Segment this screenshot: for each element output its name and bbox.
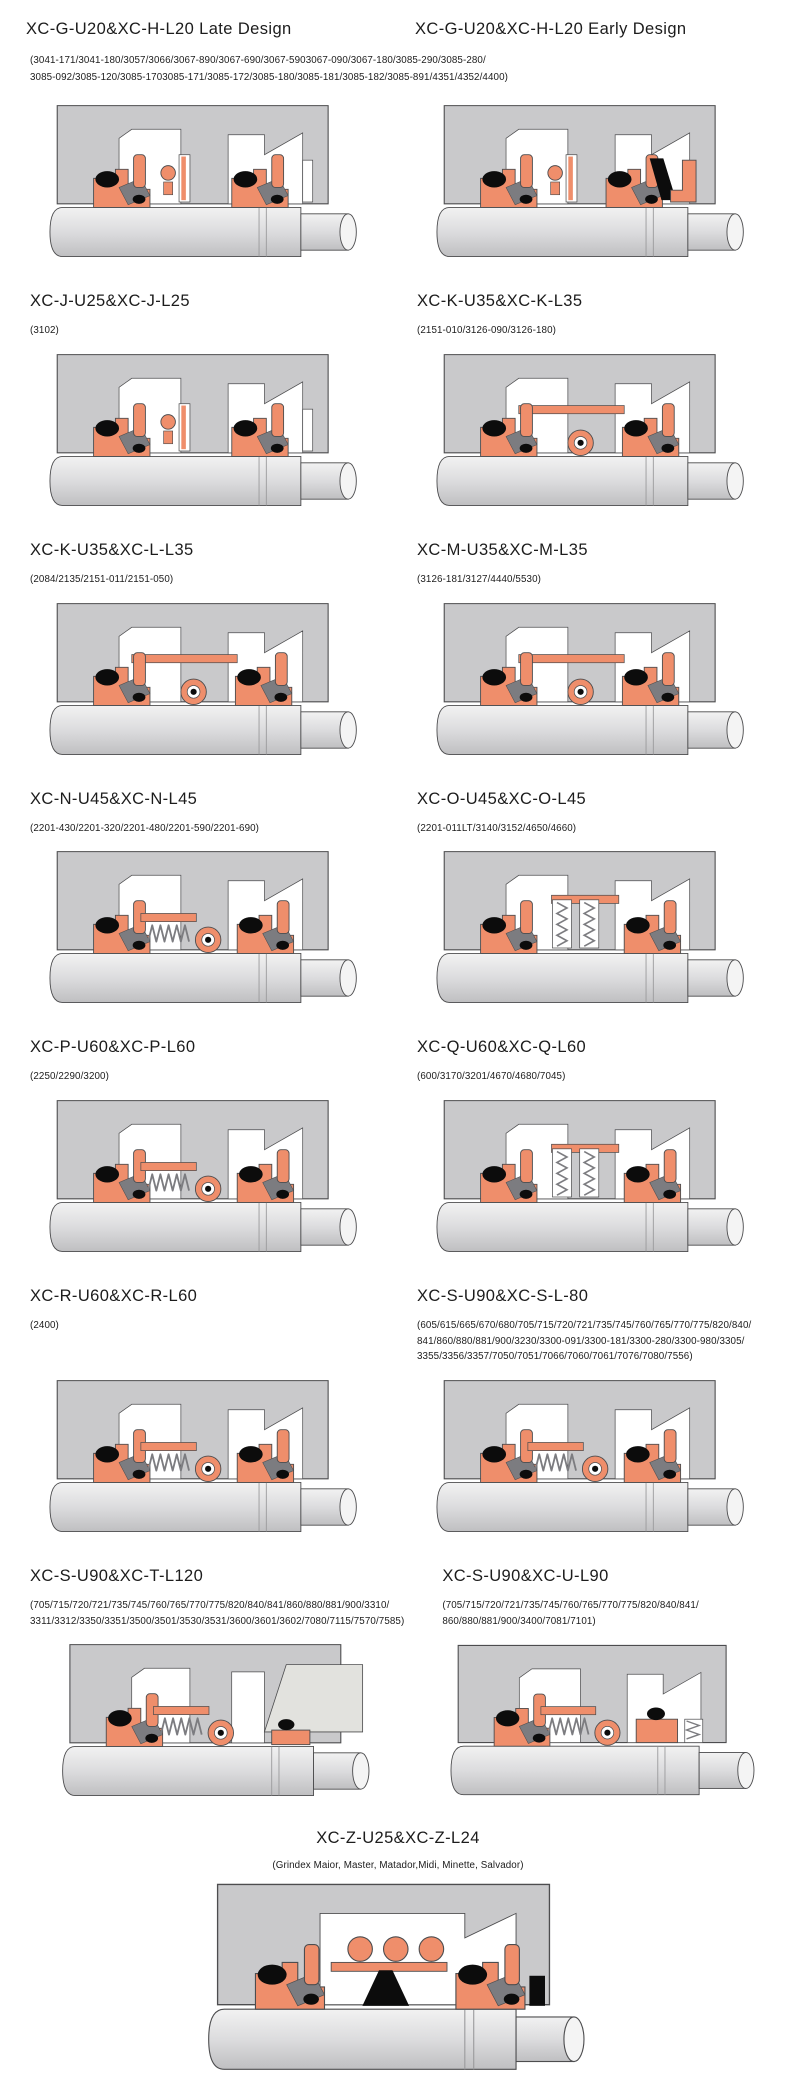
seal-diagram <box>442 1629 766 1801</box>
seal-panel: XC-R-U60&XC-R-L60 (2400) <box>30 1257 379 1537</box>
seal-panel: XC-S-U90&XC-S-L-80 (605/615/665/670/680/… <box>417 1257 766 1537</box>
shared-part-numbers: (3041-171/3041-180/3057/3066/3067-890/30… <box>0 52 796 86</box>
panel-row: XC-N-U45&XC-N-L45 (2201-430/2201-320/220… <box>0 760 796 1009</box>
seal-diagram <box>193 1880 603 2076</box>
panel-subtitle: (705/715/720/721/735/745/760/765/770/775… <box>442 1598 766 1629</box>
panel-title: XC-J-U25&XC-J-L25 <box>30 292 379 311</box>
panel-subtitle: (3126-181/3127/4440/5530) <box>417 572 766 588</box>
panel-subtitle: (2151-010/3126-090/3126-180) <box>417 323 766 339</box>
panel-title-late-design: XC-G-U20&XC-H-L20 Late Design <box>26 20 377 39</box>
panel-title: XC-Z-U25&XC-Z-L24 <box>30 1829 766 1848</box>
seal-panel: XC-K-U35&XC-L-L35 (2084/2135/2151-011/21… <box>30 511 379 760</box>
seal-panel: XC-M-U35&XC-M-L35 (3126-181/3127/4440/55… <box>417 511 766 760</box>
panel-subtitle: (2201-430/2201-320/2201-480/2201-590/220… <box>30 821 379 837</box>
seal-diagram <box>30 1085 379 1257</box>
panel-title-early-design: XC-G-U20&XC-H-L20 Early Design <box>415 20 766 39</box>
catalog-page: { "colors": { "background": "#ffffff", "… <box>0 0 796 2094</box>
panel-title: XC-S-U90&XC-S-L-80 <box>417 1287 766 1306</box>
panel-row: XC-R-U60&XC-R-L60 (2400) XC-S-U90&XC-S-L… <box>0 1257 796 1537</box>
header-titles: XC-G-U20&XC-H-L20 Late Design XC-G-U20&X… <box>0 6 796 39</box>
seal-diagram <box>417 339 766 511</box>
panel-title: XC-S-U90&XC-T-L120 <box>30 1567 404 1586</box>
seal-panel: XC-N-U45&XC-N-L45 (2201-430/2201-320/220… <box>30 760 379 1009</box>
seal-diagram <box>417 836 766 1008</box>
seal-panel: XC-Q-U60&XC-Q-L60 (600/3170/3201/4670/46… <box>417 1008 766 1257</box>
seal-panel: XC-K-U35&XC-K-L35 (2151-010/3126-090/312… <box>417 262 766 511</box>
panel-title: XC-K-U35&XC-K-L35 <box>417 292 766 311</box>
panel-subtitle: (2201-011LT/3140/3152/4650/4660) <box>417 821 766 837</box>
panel-subtitle: (3102) <box>30 323 379 339</box>
seal-diagram <box>417 1365 766 1537</box>
seal-diagram-early <box>417 90 766 262</box>
seal-panel: XC-J-U25&XC-J-L25 (3102) <box>30 262 379 511</box>
panel-row: XC-P-U60&XC-P-L60 (2250/2290/3200) XC-Q-… <box>0 1008 796 1257</box>
catalog-content: XC-G-U20&XC-H-L20 Late Design XC-G-U20&X… <box>0 0 796 2094</box>
panel-subtitle: (Grindex Maior, Master, Matador,Midi, Mi… <box>30 1858 766 1874</box>
seal-panel: XC-P-U60&XC-P-L60 (2250/2290/3200) <box>30 1008 379 1257</box>
seal-diagram <box>30 836 379 1008</box>
header-row: XC-G-U20&XC-H-L20 Late Design XC-G-U20&X… <box>0 6 796 262</box>
seal-diagram <box>30 1629 404 1801</box>
seal-diagram <box>417 588 766 760</box>
seal-diagram <box>30 588 379 760</box>
seal-diagram-late <box>30 90 379 262</box>
panel-subtitle: (2250/2290/3200) <box>30 1069 379 1085</box>
panel-title: XC-S-U90&XC-U-L90 <box>442 1567 766 1586</box>
panel-row: XC-S-U90&XC-T-L120 (705/715/720/721/735/… <box>0 1537 796 1801</box>
panel-title: XC-Q-U60&XC-Q-L60 <box>417 1038 766 1057</box>
seal-panel-footer: XC-Z-U25&XC-Z-L24 (Grindex Maior, Master… <box>0 1829 796 2076</box>
panel-title: XC-O-U45&XC-O-L45 <box>417 790 766 809</box>
panel-title: XC-N-U45&XC-N-L45 <box>30 790 379 809</box>
seal-diagram <box>417 1085 766 1257</box>
panel-row: XC-J-U25&XC-J-L25 (3102) XC-K-U35&XC-K-L… <box>0 262 796 511</box>
panel-title: XC-K-U35&XC-L-L35 <box>30 541 379 560</box>
panel-subtitle: (705/715/720/721/735/745/760/765/770/775… <box>30 1598 404 1629</box>
panel-title: XC-P-U60&XC-P-L60 <box>30 1038 379 1057</box>
panel-subtitle: (2400) <box>30 1318 379 1334</box>
seal-panel: XC-S-U90&XC-T-L120 (705/715/720/721/735/… <box>30 1537 404 1801</box>
panel-title: XC-R-U60&XC-R-L60 <box>30 1287 379 1306</box>
seal-diagram <box>30 1365 379 1537</box>
panel-subtitle: (600/3170/3201/4670/4680/7045) <box>417 1069 766 1085</box>
panel-row: XC-K-U35&XC-L-L35 (2084/2135/2151-011/21… <box>0 511 796 760</box>
seal-panel: XC-O-U45&XC-O-L45 (2201-011LT/3140/3152/… <box>417 760 766 1009</box>
header-diagrams <box>0 90 796 262</box>
panel-subtitle: (2084/2135/2151-011/2151-050) <box>30 572 379 588</box>
panel-subtitle: (605/615/665/670/680/705/715/720/721/735… <box>417 1318 766 1365</box>
panel-title: XC-M-U35&XC-M-L35 <box>417 541 766 560</box>
seal-diagram <box>30 339 379 511</box>
seal-panel: XC-S-U90&XC-U-L90 (705/715/720/721/735/7… <box>442 1537 766 1801</box>
